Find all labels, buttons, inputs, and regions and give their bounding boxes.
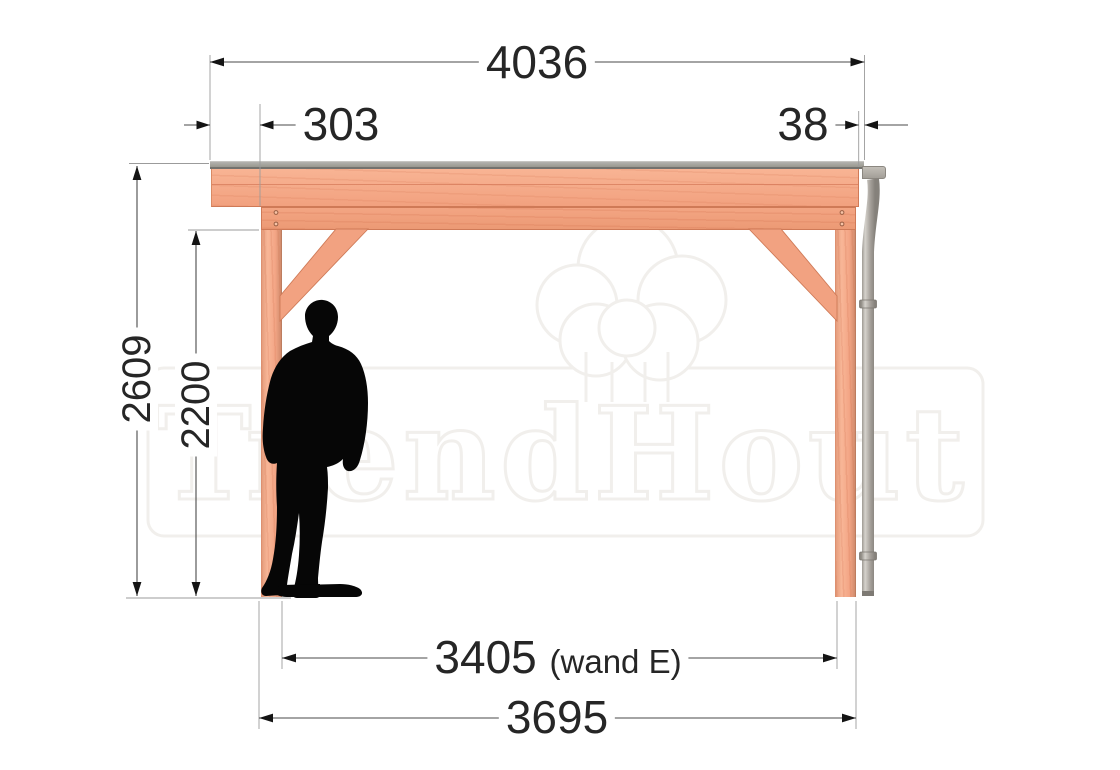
dim-wall-span-label: 3405 (wand E) bbox=[427, 633, 688, 681]
post-right bbox=[835, 230, 856, 597]
downpipe-end-cap bbox=[862, 591, 874, 596]
dim-post-span-label: 3695 bbox=[499, 693, 615, 741]
fascia-board bbox=[211, 169, 859, 207]
dim-overall-height-label: 2609 bbox=[116, 328, 158, 431]
post-left bbox=[261, 230, 282, 597]
dim-top-width-label: 4036 bbox=[479, 38, 595, 86]
dim-wall-span-note: (wand E) bbox=[550, 643, 682, 680]
dim-wall-span-value: 3405 bbox=[434, 631, 536, 683]
tree-logo-icon bbox=[537, 218, 726, 404]
knee-brace-right bbox=[749, 229, 837, 321]
dim-clear-height-label: 2200 bbox=[175, 354, 217, 457]
header-beam bbox=[261, 207, 856, 230]
knee-brace-left bbox=[280, 229, 368, 321]
gutter-outlet bbox=[862, 166, 886, 179]
fascia-board-seam bbox=[212, 184, 858, 185]
dim-right-overhang-label: 38 bbox=[770, 100, 835, 148]
downpipe-bracket-lower bbox=[860, 552, 877, 560]
downpipe-bracket-upper bbox=[860, 300, 877, 308]
veranda-side-elevation-drawing: TrendHout bbox=[0, 0, 1120, 770]
dim-left-overhang-label: 303 bbox=[296, 100, 387, 148]
roof-deck bbox=[210, 161, 864, 169]
